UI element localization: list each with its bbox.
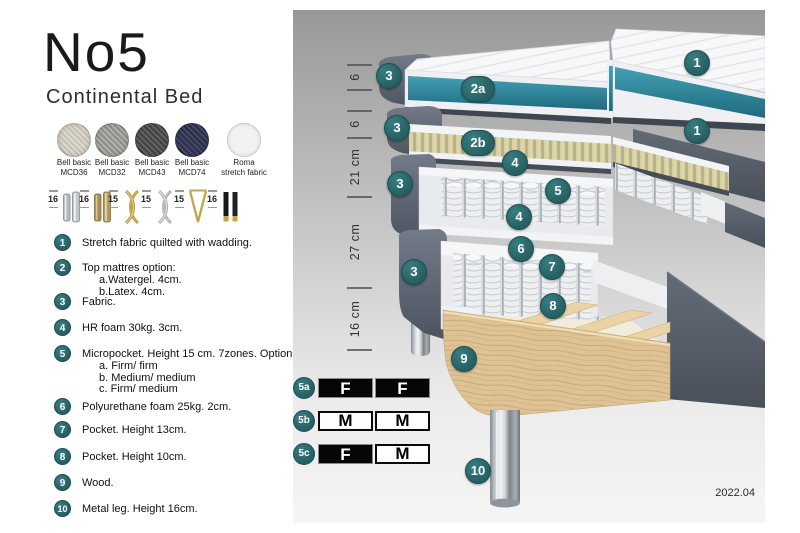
tick-mark [208, 207, 217, 209]
item-text: Polyurethane foam 25kg. 2cm. [82, 401, 231, 413]
leg-option: 15 [174, 185, 209, 231]
callout-3: 3 [376, 63, 402, 89]
firmness-cell: M [375, 411, 430, 431]
tick-mark [109, 190, 118, 192]
tick-mark [49, 207, 58, 209]
firmness-row-5c: 5c F M [293, 443, 432, 465]
leg-height: 16 [207, 194, 217, 205]
item-text: Micropocket. Height 15 cm. 7zones. Optio… [82, 348, 295, 360]
tick-mark [175, 207, 184, 209]
leg-twist-gold-icon [121, 187, 143, 227]
callout-8: 8 [540, 293, 566, 319]
page-subtitle: Continental Bed [46, 86, 203, 109]
item-number-badge: 9 [54, 474, 71, 491]
item-sub-text: c. Firm/ medium [99, 384, 295, 396]
page-title: No5 [43, 22, 150, 82]
callout-5: 5 [545, 178, 571, 204]
row-label-badge: 5c [293, 443, 315, 465]
ruler-label: 21 cm [348, 137, 364, 197]
item-number-badge: 8 [54, 448, 71, 465]
list-item: 8Pocket. Height 10cm. [54, 448, 187, 465]
version-label: 2022.04 [689, 487, 755, 499]
firmness-row-5a: 5a F F [293, 377, 432, 399]
callout-3: 3 [384, 115, 410, 141]
item-text: Top mattres option: [82, 262, 176, 274]
tick-mark [208, 190, 217, 192]
list-item: 10Metal leg. Height 16cm. [54, 500, 198, 517]
callout-6: 6 [508, 236, 534, 262]
ruler-label: 27 cm [348, 212, 364, 272]
item-number-badge: 6 [54, 398, 71, 415]
item-number-badge: 10 [54, 500, 71, 517]
tick-mark [142, 190, 151, 192]
item-text: HR foam 30kg. 3cm. [82, 322, 182, 334]
list-item: 7Pocket. Height 13cm. [54, 421, 187, 438]
item-number-badge: 3 [54, 293, 71, 310]
row-label-badge: 5a [293, 377, 315, 399]
callout-3: 3 [401, 259, 427, 285]
callout-10: 10 [465, 458, 491, 484]
tick-mark [80, 207, 89, 209]
leg-height: 16 [79, 194, 89, 205]
firmness-row-5b: 5b M M [293, 410, 432, 432]
firmness-cell: M [318, 411, 373, 431]
metal-leg [490, 410, 520, 507]
list-item: 1Stretch fabric quilted with wadding. [54, 234, 252, 251]
bed-diagram: 6 6 21 cm 27 cm 16 cm 3 2a 1 3 2b 1 4 5 … [293, 10, 765, 523]
swatch-label: Bell basicMCD74 [166, 158, 218, 177]
item-text: Wood. [82, 477, 114, 489]
leg-option: 16 [48, 185, 83, 231]
firmness-cell: F [318, 444, 373, 464]
tick-mark [80, 190, 89, 192]
leg-height: 15 [174, 194, 184, 205]
callout-2b: 2b [461, 130, 495, 156]
fabric-swatch [135, 123, 169, 157]
list-item: 4HR foam 30kg. 3cm. [54, 319, 182, 336]
tick-mark [49, 190, 58, 192]
item-text: Pocket. Height 13cm. [82, 424, 187, 436]
callout-4: 4 [502, 150, 528, 176]
row-label-badge: 5b [293, 410, 315, 432]
page: { "header": { "title": "No5", "subtitle"… [0, 0, 800, 533]
leg-option: 15 [108, 185, 143, 231]
fabric-swatch [227, 123, 261, 157]
item-number-badge: 1 [54, 234, 71, 251]
item-sub-text: a. Firm/ firm [99, 361, 295, 373]
tick-mark [109, 207, 118, 209]
item-number-badge: 2 [54, 259, 71, 276]
item-number-badge: 4 [54, 319, 71, 336]
leg-black-gold-icon [220, 187, 242, 227]
list-item: 5Micropocket. Height 15 cm. 7zones. Opti… [54, 345, 295, 396]
list-item: 6Polyurethane foam 25kg. 2cm. [54, 398, 231, 415]
leg-option: 15 [141, 185, 176, 231]
item-number-badge: 5 [54, 345, 71, 362]
fabric-swatch [95, 123, 129, 157]
callout-3: 3 [387, 171, 413, 197]
list-item: 9Wood. [54, 474, 114, 491]
callout-1: 1 [684, 118, 710, 144]
firmness-cell: F [318, 378, 373, 398]
firmness-cell: M [375, 444, 430, 464]
callout-7: 7 [539, 254, 565, 280]
tick-mark [175, 190, 184, 192]
swatch-label: Romastretch fabric [218, 158, 270, 177]
callout-2a: 2a [461, 76, 495, 102]
leg-height: 16 [48, 194, 58, 205]
list-item: 3Fabric. [54, 293, 116, 310]
tick-mark [142, 207, 151, 209]
item-text: Metal leg. Height 16cm. [82, 503, 198, 515]
fabric-swatch [175, 123, 209, 157]
item-number-badge: 7 [54, 421, 71, 438]
leg-hairpin-gold-icon [187, 187, 209, 227]
fabric-swatch [57, 123, 91, 157]
item-text: Fabric. [82, 296, 116, 308]
callout-9: 9 [451, 346, 477, 372]
leg-height: 15 [108, 194, 118, 205]
leg-option: 16 [207, 185, 242, 231]
leg-height: 15 [141, 194, 151, 205]
callout-4: 4 [506, 204, 532, 230]
item-sub-text: a.Watergel. 4cm. [99, 275, 182, 287]
leg-twist-silver-icon [154, 187, 176, 227]
callout-1: 1 [684, 50, 710, 76]
ruler-label: 16 cm [348, 289, 364, 349]
firmness-cell: F [375, 378, 430, 398]
item-text: Stretch fabric quilted with wadding. [82, 237, 252, 249]
item-text: Pocket. Height 10cm. [82, 451, 187, 463]
